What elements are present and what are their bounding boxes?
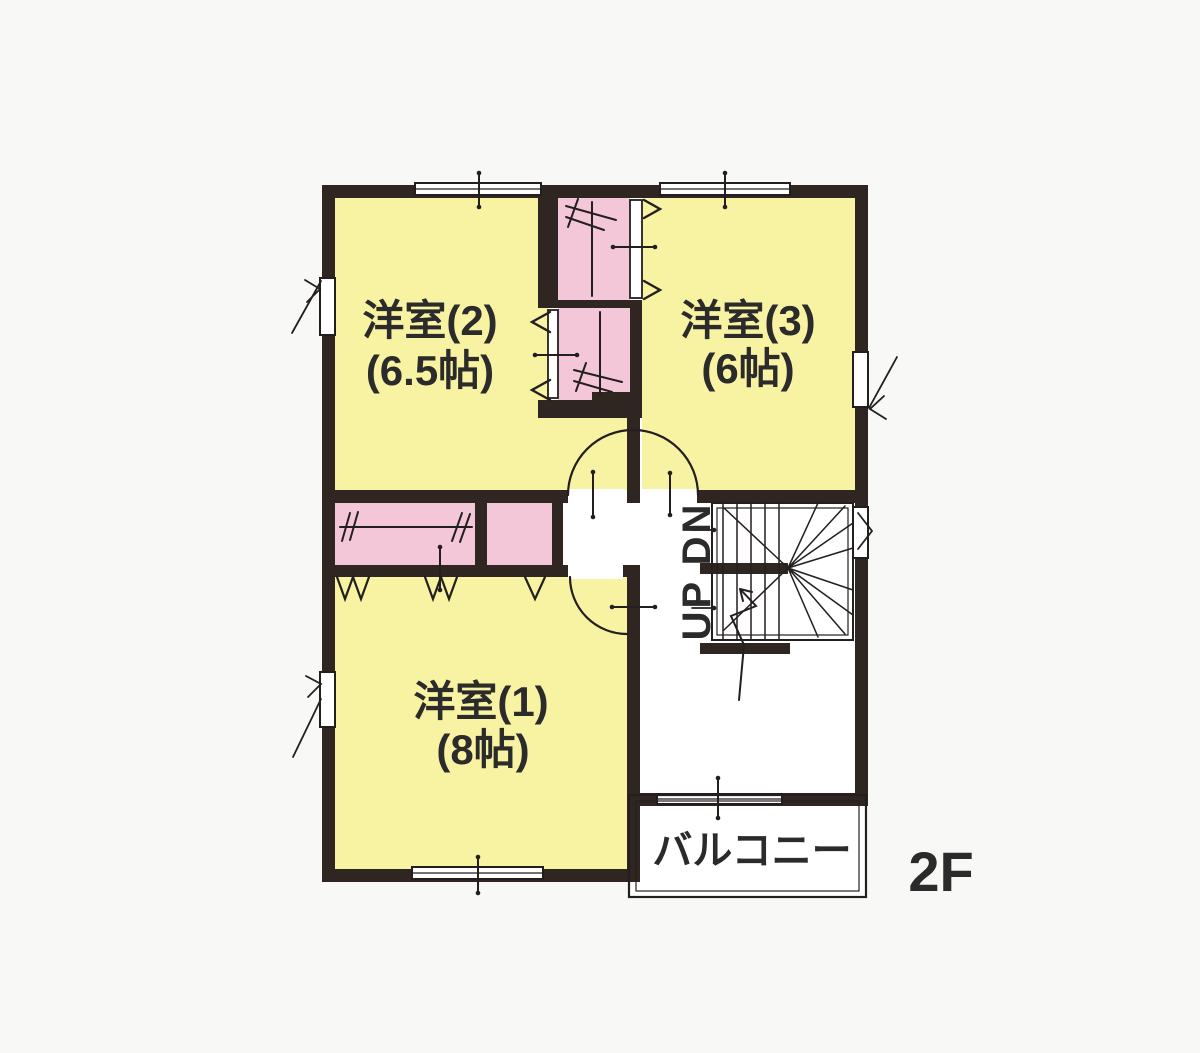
balcony-label: バルコニー [652,829,851,873]
room-1-size: (8帖) [436,726,529,773]
room-1-name: 洋室(1) [413,678,548,725]
room-3-name: 洋室(3) [680,297,815,344]
room-2-area [335,198,538,490]
room-3-size: (6帖) [701,345,794,392]
room-3-area [642,198,855,490]
floor-plan-page: 洋室(2) (6.5帖) 洋室(3) (6帖) 洋室(1) (8帖) バルコニー… [0,0,1200,1053]
stairs-updn-label: UP DN [675,502,719,641]
closet-room1-right [487,500,552,565]
floor-number-label: 2F [908,840,973,903]
room-2-name: 洋室(2) [362,297,497,344]
room-2-size: (6.5帖) [366,347,494,394]
floor-plan-drawing: 洋室(2) (6.5帖) 洋室(3) (6帖) 洋室(1) (8帖) バルコニー… [0,0,1200,1053]
